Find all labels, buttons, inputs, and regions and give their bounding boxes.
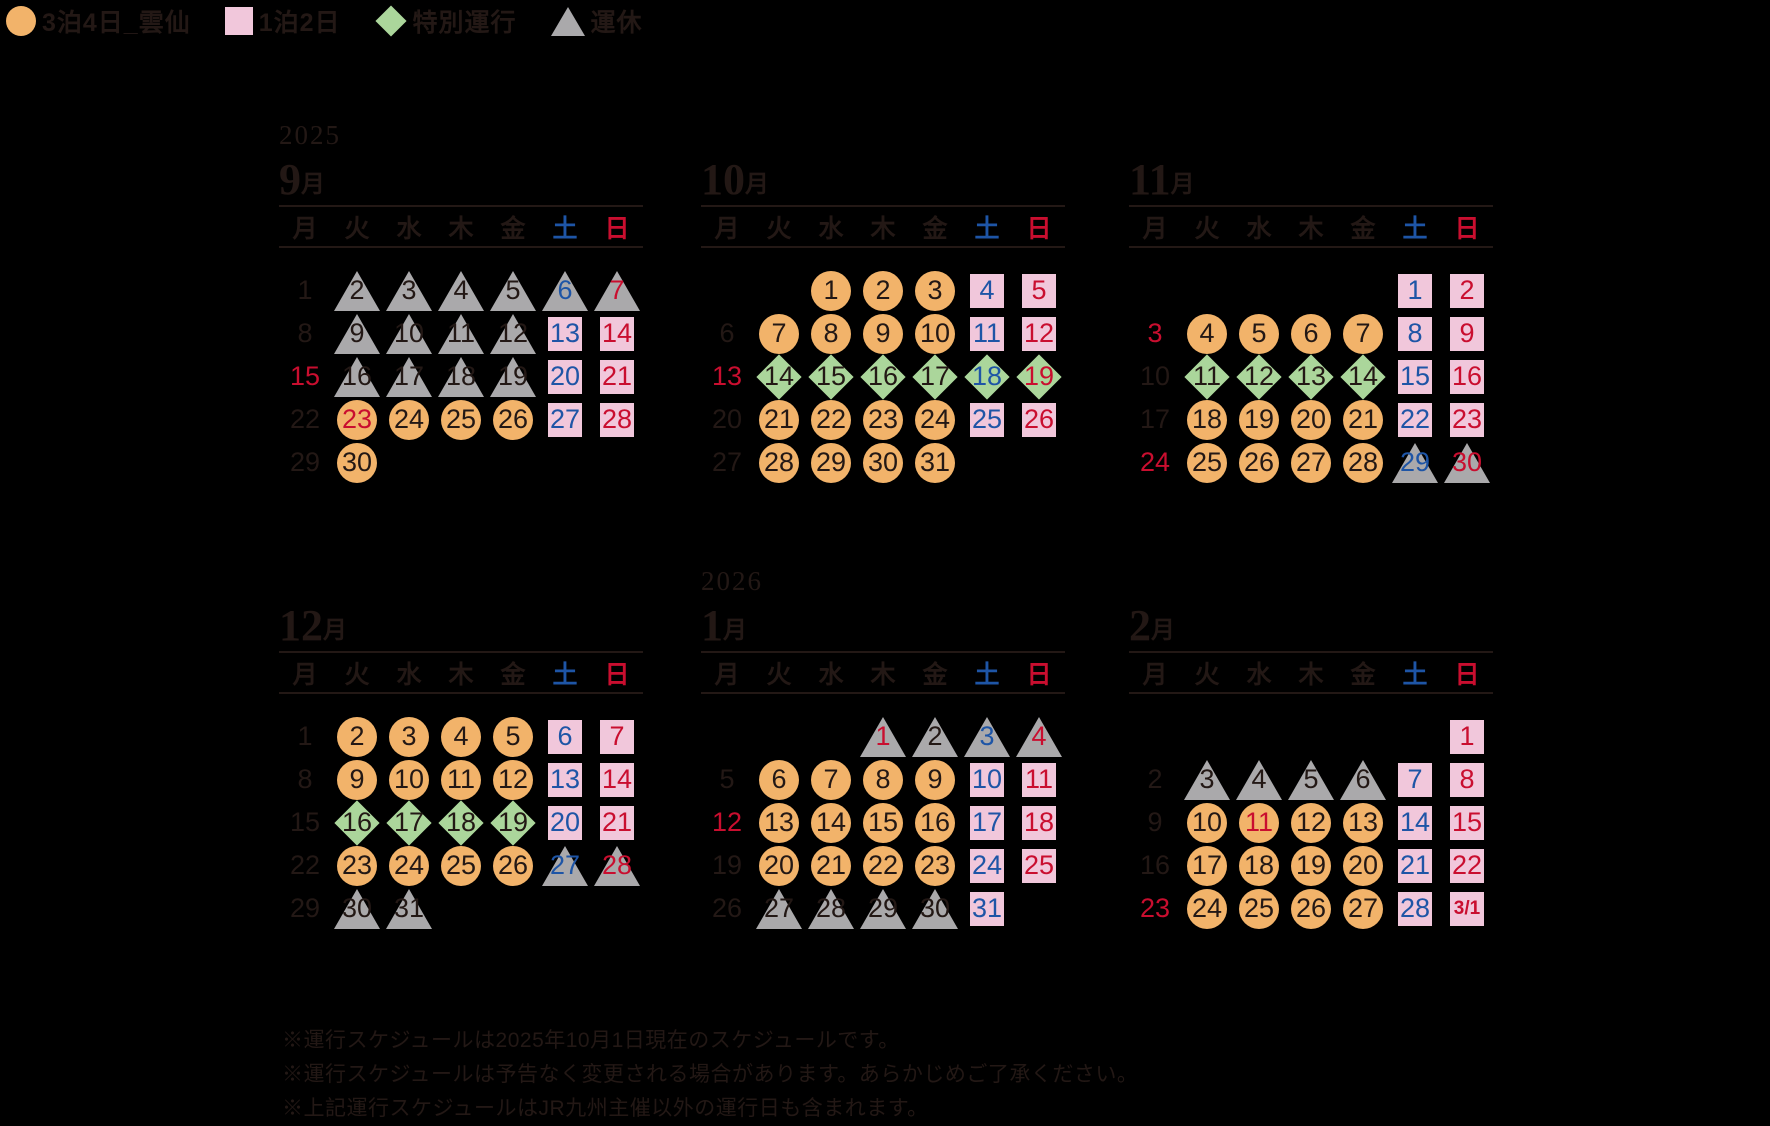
- divider: [279, 246, 643, 248]
- legend-label: 運休: [591, 3, 643, 39]
- day-cell: 13: [753, 801, 805, 844]
- day-cell: 18: [435, 801, 487, 844]
- day-number: 2: [927, 721, 942, 752]
- day-cell: 28: [591, 398, 643, 441]
- weekday-header: 月: [279, 655, 331, 691]
- day-number: 4: [979, 275, 994, 306]
- day-cell: 25: [1013, 844, 1065, 887]
- day-cell: 25: [435, 398, 487, 441]
- day-cell: 30: [1441, 441, 1493, 484]
- day-number: 12: [498, 318, 528, 349]
- day-cell: 10: [1181, 801, 1233, 844]
- day-number: 18: [1024, 807, 1054, 838]
- day-number: 1: [297, 275, 312, 306]
- day-number: 20: [1296, 404, 1326, 435]
- day-number: 14: [1400, 807, 1430, 838]
- day-cell: 20: [539, 801, 591, 844]
- day-number: 16: [342, 807, 372, 838]
- day-number: 8: [823, 318, 838, 349]
- weekday-header: 水: [1233, 655, 1285, 691]
- day-cell: 22: [279, 398, 331, 441]
- month-number: 2: [1129, 604, 1151, 648]
- year-label: [1129, 120, 1493, 154]
- day-number: 15: [1400, 361, 1430, 392]
- weekday-header: 月: [1129, 655, 1181, 691]
- day-cell: 11: [1181, 355, 1233, 398]
- divider: [1129, 651, 1493, 653]
- day-number: 23: [920, 850, 950, 881]
- day-cell: 14: [591, 758, 643, 801]
- empty-cell: [701, 715, 753, 758]
- divider: [279, 651, 643, 653]
- divider: [1129, 205, 1493, 207]
- day-number: 14: [764, 361, 794, 392]
- day-cell: 15: [1441, 801, 1493, 844]
- empty-cell: [961, 441, 1013, 484]
- day-cell: 27: [539, 398, 591, 441]
- year-label: 2026: [701, 566, 1065, 600]
- day-number: 15: [868, 807, 898, 838]
- day-cell: 19: [1233, 398, 1285, 441]
- day-number: 25: [446, 404, 476, 435]
- day-cell: 25: [1233, 887, 1285, 930]
- day-number: 20: [550, 361, 580, 392]
- day-number: 4: [453, 721, 468, 752]
- day-number: 10: [394, 764, 424, 795]
- legend-label: 1泊2日: [259, 3, 341, 39]
- day-number: 29: [816, 447, 846, 478]
- day-number: 31: [920, 447, 950, 478]
- day-number: 10: [1140, 361, 1170, 392]
- day-number: 5: [1031, 275, 1046, 306]
- day-cell: 6: [701, 312, 753, 355]
- day-number: 10: [972, 764, 1002, 795]
- day-number: 18: [446, 361, 476, 392]
- day-cell: 29: [279, 441, 331, 484]
- day-cell: 29: [805, 441, 857, 484]
- day-number: 8: [1407, 318, 1422, 349]
- day-number: 3: [401, 721, 416, 752]
- day-number: 4: [1031, 721, 1046, 752]
- month-number: 9: [279, 158, 301, 202]
- day-cell: 3: [383, 715, 435, 758]
- day-cell: 12: [1285, 801, 1337, 844]
- day-cell: 21: [591, 801, 643, 844]
- day-number: 25: [1244, 893, 1274, 924]
- day-number: 27: [1296, 447, 1326, 478]
- day-number: 8: [297, 318, 312, 349]
- empty-cell: [487, 441, 539, 484]
- day-cell: 3/1: [1441, 887, 1493, 930]
- day-cell: 6: [1285, 312, 1337, 355]
- legend-item-special: 特別運行: [375, 3, 517, 39]
- day-grid: 1234567891011121314151617181920212223242…: [1129, 715, 1493, 930]
- day-number: 23: [342, 850, 372, 881]
- day-cell: 17: [383, 355, 435, 398]
- day-number: 7: [609, 721, 624, 752]
- weekday-header: 火: [331, 655, 383, 691]
- month-suffix: 月: [301, 170, 325, 202]
- day-cell: 22: [805, 398, 857, 441]
- weekday-header: 金: [909, 209, 961, 245]
- day-cell: 24: [1129, 441, 1181, 484]
- day-number: 1: [297, 721, 312, 752]
- day-number: 7: [771, 318, 786, 349]
- divider: [701, 246, 1065, 248]
- day-number: 3: [1199, 764, 1214, 795]
- day-number: 26: [1244, 447, 1274, 478]
- empty-cell: [435, 887, 487, 930]
- day-number: 12: [1244, 361, 1274, 392]
- month-number: 10: [701, 158, 745, 202]
- day-cell: 3: [961, 715, 1013, 758]
- empty-cell: [435, 441, 487, 484]
- day-number: 22: [290, 850, 320, 881]
- day-cell: 6: [539, 715, 591, 758]
- month-title: 10月: [701, 154, 1065, 202]
- day-cell: 18: [1181, 398, 1233, 441]
- day-cell: 23: [331, 398, 383, 441]
- weekday-header: 土: [539, 655, 591, 691]
- weekday-header: 日: [1441, 209, 1493, 245]
- day-number: 11: [973, 318, 1001, 349]
- day-number: 15: [1452, 807, 1482, 838]
- weekday-header: 金: [487, 655, 539, 691]
- day-number: 4: [453, 275, 468, 306]
- divider: [701, 205, 1065, 207]
- day-number: 4: [1251, 764, 1266, 795]
- day-number: 1: [875, 721, 890, 752]
- year-label: 2025: [279, 120, 643, 154]
- day-number: 9: [349, 764, 364, 795]
- day-cell: 19: [701, 844, 753, 887]
- day-number: 2: [1459, 275, 1474, 306]
- day-number: 19: [498, 361, 528, 392]
- day-number: 19: [1244, 404, 1274, 435]
- day-number: 10: [1192, 807, 1222, 838]
- day-cell: 6: [539, 269, 591, 312]
- day-number: 27: [550, 404, 580, 435]
- weekday-header: 金: [1337, 209, 1389, 245]
- empty-cell: [383, 441, 435, 484]
- day-cell: 4: [1181, 312, 1233, 355]
- day-number: 27: [712, 447, 742, 478]
- weekday-header: 土: [961, 655, 1013, 691]
- day-cell: 10: [383, 758, 435, 801]
- day-number: 20: [550, 807, 580, 838]
- month-suffix: 月: [745, 170, 769, 202]
- day-number: 31: [394, 893, 424, 924]
- day-cell: 16: [331, 355, 383, 398]
- day-cell: 21: [805, 844, 857, 887]
- day-cell: 28: [753, 441, 805, 484]
- day-cell: 26: [701, 887, 753, 930]
- divider: [1129, 246, 1493, 248]
- day-cell: 23: [1129, 887, 1181, 930]
- calendar-month-11: 11月月火水木金土日123456789101112131415161718192…: [1129, 120, 1493, 484]
- day-cell: 24: [1181, 887, 1233, 930]
- day-number: 9: [1147, 807, 1162, 838]
- day-cell: 8: [805, 312, 857, 355]
- day-cell: 8: [279, 758, 331, 801]
- day-cell: 15: [805, 355, 857, 398]
- day-cell: 11: [435, 758, 487, 801]
- day-cell: 14: [1337, 355, 1389, 398]
- day-cell: 19: [487, 355, 539, 398]
- day-cell: 6: [753, 758, 805, 801]
- calendar-month-2: 2月月火水木金土日1234567891011121314151617181920…: [1129, 566, 1493, 930]
- day-cell: 23: [909, 844, 961, 887]
- weekday-header: 水: [1233, 209, 1285, 245]
- day-number: 11: [1193, 361, 1221, 392]
- day-number: 29: [290, 447, 320, 478]
- empty-cell: [753, 269, 805, 312]
- day-number: 6: [771, 764, 786, 795]
- empty-cell: [539, 441, 591, 484]
- day-cell: 1: [279, 269, 331, 312]
- legend: 3泊4日_雲仙 1泊2日 特別運行 運休: [6, 3, 643, 39]
- day-number: 3: [927, 275, 942, 306]
- day-cell: 7: [805, 758, 857, 801]
- day-cell: 4: [435, 715, 487, 758]
- empty-cell: [1233, 715, 1285, 758]
- day-number: 29: [1400, 447, 1430, 478]
- day-cell: 19: [1285, 844, 1337, 887]
- weekday-header: 火: [753, 655, 805, 691]
- day-cell: 31: [909, 441, 961, 484]
- day-cell: 14: [805, 801, 857, 844]
- day-number: 24: [1140, 447, 1170, 478]
- weekday-header: 土: [1389, 209, 1441, 245]
- day-grid: 1234567891011121314151617181920212223242…: [701, 269, 1065, 484]
- day-number: 2: [349, 721, 364, 752]
- day-number: 6: [1303, 318, 1318, 349]
- day-cell: 4: [1233, 758, 1285, 801]
- weekday-header-row: 月火水木金土日: [279, 209, 643, 243]
- day-number: 18: [1192, 404, 1222, 435]
- day-number: 24: [972, 850, 1002, 881]
- day-cell: 15: [1389, 355, 1441, 398]
- day-number: 30: [920, 893, 950, 924]
- day-cell: 2: [1441, 269, 1493, 312]
- day-cell: 7: [591, 269, 643, 312]
- day-cell: 23: [1441, 398, 1493, 441]
- calendar-month-10: 10月月火水木金土日123456789101112131415161718192…: [701, 120, 1065, 484]
- day-cell: 24: [909, 398, 961, 441]
- day-number: 2: [1147, 764, 1162, 795]
- empty-cell: [805, 715, 857, 758]
- footnotes: ※運行スケジュールは2025年10月1日現在のスケジュールです。 ※運行スケジュ…: [282, 1024, 1138, 1126]
- day-number: 28: [602, 404, 632, 435]
- empty-cell: [539, 887, 591, 930]
- day-cell: 5: [487, 715, 539, 758]
- day-number: 11: [1025, 764, 1053, 795]
- weekday-header: 土: [961, 209, 1013, 245]
- day-cell: 5: [1013, 269, 1065, 312]
- day-cell: 31: [961, 887, 1013, 930]
- day-number: 22: [1452, 850, 1482, 881]
- day-cell: 10: [1129, 355, 1181, 398]
- legend-label: 3泊4日_雲仙: [42, 3, 191, 39]
- day-number: 25: [1192, 447, 1222, 478]
- month-title: 11月: [1129, 154, 1493, 202]
- divider: [701, 651, 1065, 653]
- empty-cell: [1285, 715, 1337, 758]
- weekday-header-row: 月火水木金土日: [701, 655, 1065, 689]
- weekday-header: 木: [1285, 209, 1337, 245]
- day-number: 24: [1192, 893, 1222, 924]
- day-cell: 10: [909, 312, 961, 355]
- day-cell: 25: [961, 398, 1013, 441]
- day-number: 26: [1024, 404, 1054, 435]
- weekday-header: 木: [435, 209, 487, 245]
- empty-cell: [753, 715, 805, 758]
- empty-cell: [591, 441, 643, 484]
- day-number: 16: [1452, 361, 1482, 392]
- day-cell: 21: [1337, 398, 1389, 441]
- circle-icon: [6, 6, 36, 36]
- day-cell: 4: [435, 269, 487, 312]
- day-cell: 18: [1013, 801, 1065, 844]
- day-cell: 9: [909, 758, 961, 801]
- day-cell: 3: [1129, 312, 1181, 355]
- day-number: 23: [1452, 404, 1482, 435]
- weekday-header: 土: [1389, 655, 1441, 691]
- day-number: 9: [927, 764, 942, 795]
- day-cell: 16: [1129, 844, 1181, 887]
- day-number: 19: [1296, 850, 1326, 881]
- day-number: 12: [712, 807, 742, 838]
- day-cell: 4: [1013, 715, 1065, 758]
- day-number: 12: [498, 764, 528, 795]
- day-number: 16: [868, 361, 898, 392]
- month-suffix: 月: [1171, 170, 1195, 202]
- empty-cell: [1285, 269, 1337, 312]
- day-cell: 2: [909, 715, 961, 758]
- weekday-header: 木: [1285, 655, 1337, 691]
- month-number: 1: [701, 604, 723, 648]
- day-cell: 5: [487, 269, 539, 312]
- day-cell: 11: [961, 312, 1013, 355]
- day-cell: 22: [857, 844, 909, 887]
- weekday-header-row: 月火水木金土日: [279, 655, 643, 689]
- day-number: 29: [290, 893, 320, 924]
- day-cell: 16: [331, 801, 383, 844]
- day-cell: 30: [909, 887, 961, 930]
- day-cell: 17: [1181, 844, 1233, 887]
- day-cell: 15: [857, 801, 909, 844]
- day-cell: 21: [753, 398, 805, 441]
- day-number: 9: [875, 318, 890, 349]
- empty-cell: [1233, 269, 1285, 312]
- day-number: 3: [979, 721, 994, 752]
- day-number: 1: [1459, 721, 1474, 752]
- day-cell: 5: [1233, 312, 1285, 355]
- day-number: 17: [920, 361, 950, 392]
- day-number: 2: [349, 275, 364, 306]
- day-cell: 27: [1337, 887, 1389, 930]
- day-number: 28: [816, 893, 846, 924]
- day-number: 11: [447, 764, 475, 795]
- day-number: 11: [1245, 807, 1273, 838]
- month-title: 9月: [279, 154, 643, 202]
- month-title: 1月: [701, 600, 1065, 648]
- day-number: 21: [1348, 404, 1378, 435]
- day-number: 1: [1407, 275, 1422, 306]
- day-cell: 20: [539, 355, 591, 398]
- day-number: 27: [550, 850, 580, 881]
- day-number: 28: [602, 850, 632, 881]
- weekday-header-row: 月火水木金土日: [1129, 209, 1493, 243]
- weekday-header: 月: [701, 655, 753, 691]
- day-number: 14: [602, 764, 632, 795]
- day-cell: 1: [805, 269, 857, 312]
- day-number: 18: [446, 807, 476, 838]
- day-cell: 26: [1233, 441, 1285, 484]
- day-number: 13: [550, 318, 580, 349]
- weekday-header: 火: [331, 209, 383, 245]
- day-cell: 21: [1389, 844, 1441, 887]
- day-number: 23: [868, 404, 898, 435]
- calendar-month-1: 20261月月火水木金土日123456789101112131415161718…: [701, 566, 1065, 930]
- day-cell: 14: [1389, 801, 1441, 844]
- square-icon: [225, 7, 253, 35]
- day-cell: 13: [1337, 801, 1389, 844]
- day-number: 30: [1452, 447, 1482, 478]
- day-number: 3/1: [1454, 898, 1480, 920]
- day-cell: 10: [383, 312, 435, 355]
- day-cell: 10: [961, 758, 1013, 801]
- note-line: ※運行スケジュールは2025年10月1日現在のスケジュールです。: [282, 1024, 1138, 1058]
- day-cell: 17: [909, 355, 961, 398]
- day-cell: 12: [1013, 312, 1065, 355]
- day-cell: 13: [539, 758, 591, 801]
- day-cell: 19: [1013, 355, 1065, 398]
- day-cell: 8: [857, 758, 909, 801]
- day-number: 16: [342, 361, 372, 392]
- day-cell: 1: [1441, 715, 1493, 758]
- day-number: 20: [1348, 850, 1378, 881]
- day-cell: 16: [857, 355, 909, 398]
- day-cell: 3: [383, 269, 435, 312]
- day-number: 31: [972, 893, 1002, 924]
- day-cell: 21: [591, 355, 643, 398]
- weekday-header: 金: [909, 655, 961, 691]
- day-cell: 2: [331, 269, 383, 312]
- day-number: 9: [349, 318, 364, 349]
- divider: [1129, 692, 1493, 694]
- weekday-header: 火: [1181, 655, 1233, 691]
- note-line: ※運行スケジュールは予告なく変更される場合があります。あらかじめご了承ください。: [282, 1058, 1138, 1092]
- day-number: 22: [290, 404, 320, 435]
- weekday-header: 木: [857, 655, 909, 691]
- day-cell: 16: [909, 801, 961, 844]
- day-number: 25: [446, 850, 476, 881]
- day-number: 6: [557, 275, 572, 306]
- day-number: 8: [875, 764, 890, 795]
- day-cell: 22: [1441, 844, 1493, 887]
- day-cell: 29: [279, 887, 331, 930]
- day-number: 19: [712, 850, 742, 881]
- weekday-header: 水: [383, 209, 435, 245]
- empty-cell: [1013, 887, 1065, 930]
- day-cell: 18: [961, 355, 1013, 398]
- day-cell: 3: [909, 269, 961, 312]
- weekday-header: 土: [539, 209, 591, 245]
- day-number: 29: [868, 893, 898, 924]
- day-number: 7: [609, 275, 624, 306]
- day-cell: 26: [487, 844, 539, 887]
